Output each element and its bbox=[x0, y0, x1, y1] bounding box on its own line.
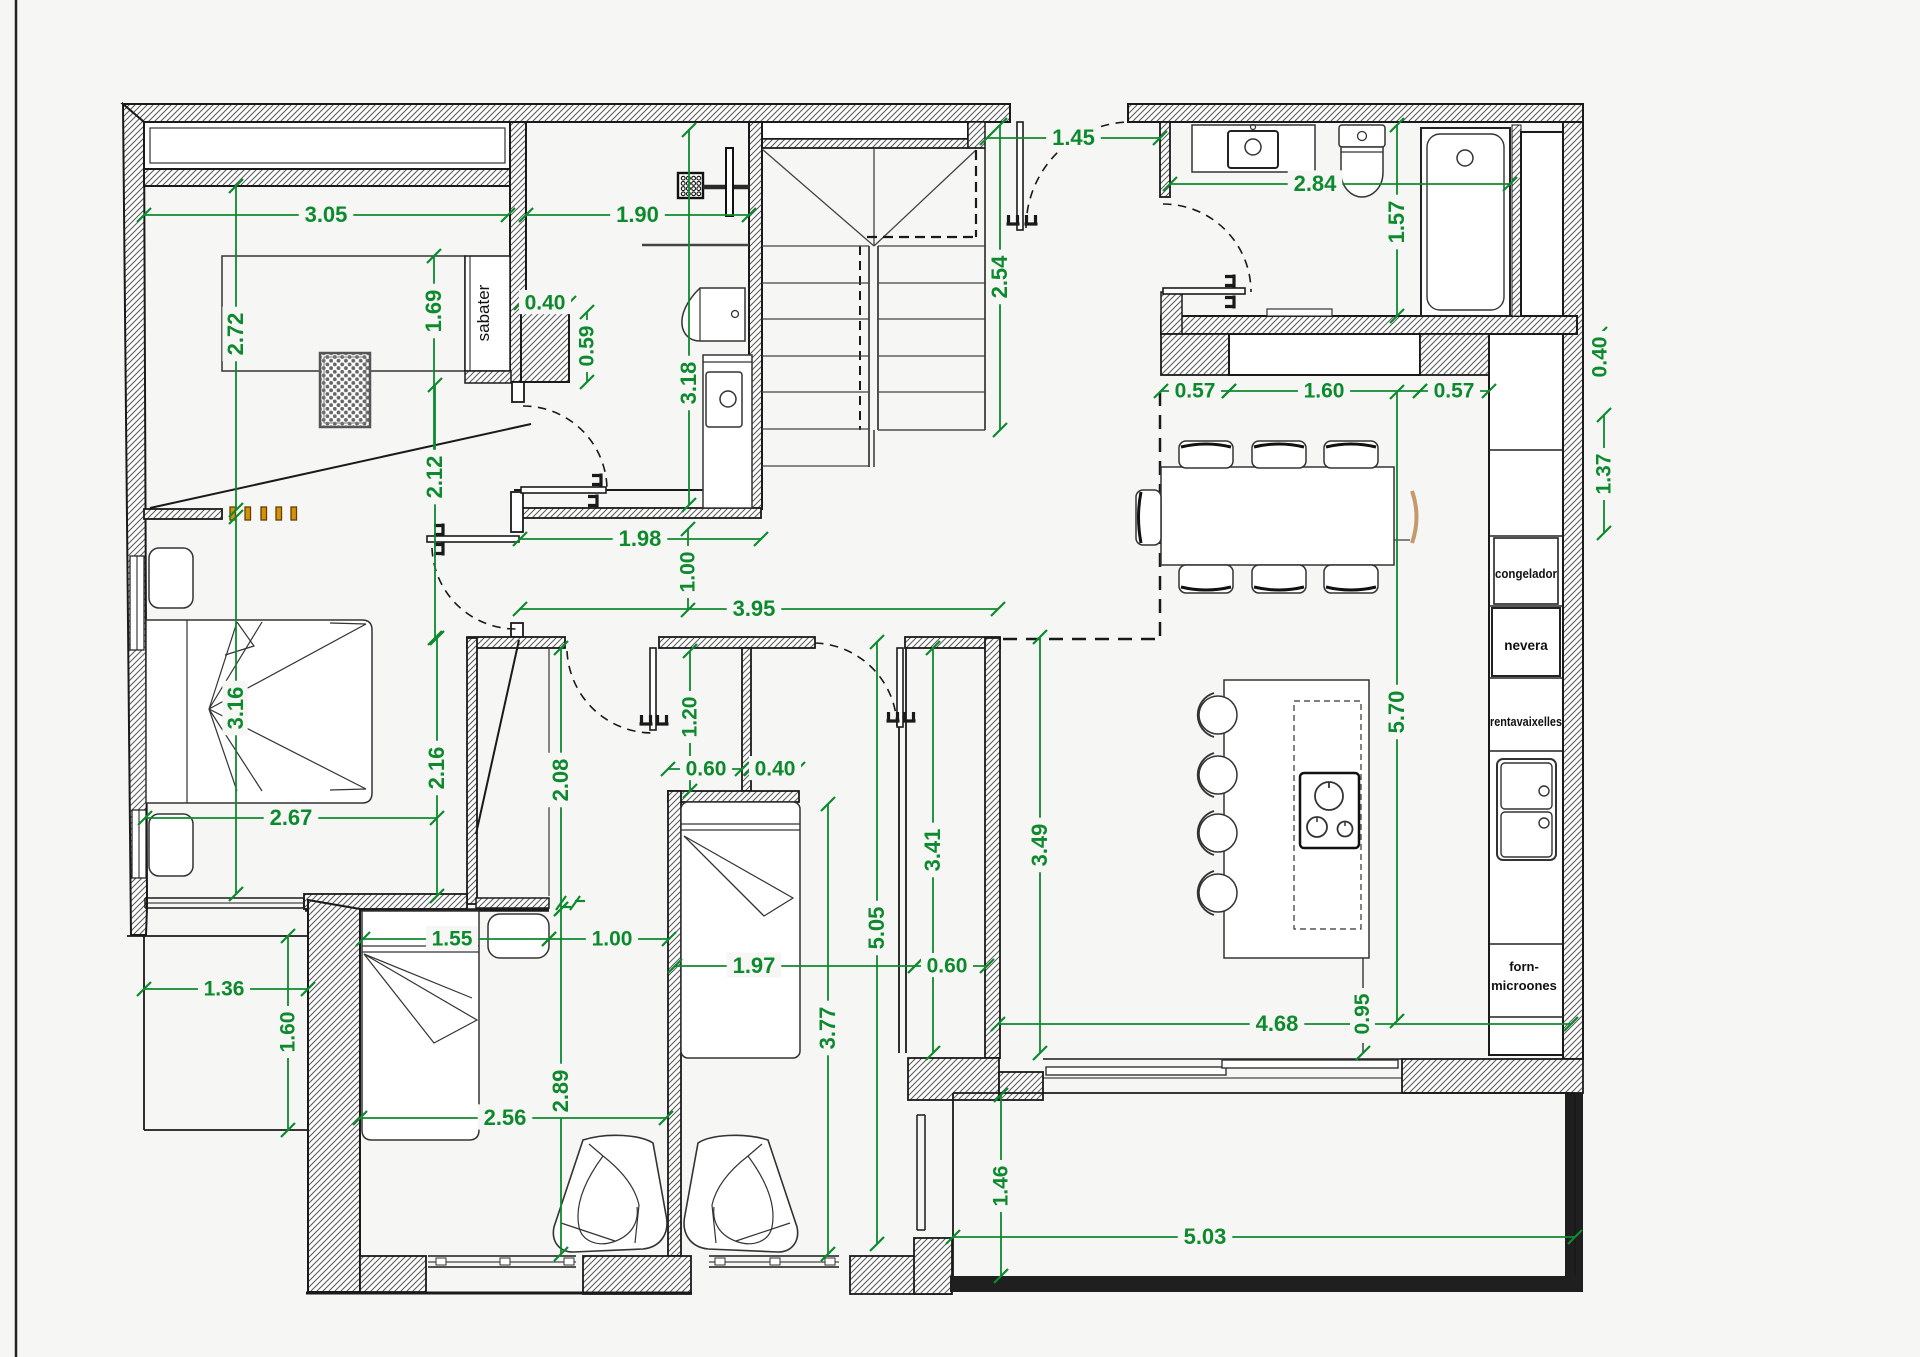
svg-text:1.90: 1.90 bbox=[616, 202, 659, 227]
svg-text:5.03: 5.03 bbox=[1184, 1224, 1227, 1249]
svg-text:0.60: 0.60 bbox=[927, 955, 968, 978]
svg-text:3.18: 3.18 bbox=[676, 362, 701, 405]
svg-text:1.00: 1.00 bbox=[677, 552, 700, 593]
svg-text:1.46: 1.46 bbox=[990, 1166, 1013, 1207]
svg-text:0.40: 0.40 bbox=[525, 292, 566, 315]
svg-text:3.95: 3.95 bbox=[733, 596, 776, 621]
svg-text:1.20: 1.20 bbox=[679, 697, 702, 738]
svg-text:2.89: 2.89 bbox=[548, 1070, 573, 1113]
svg-text:rentavaixelles: rentavaixelles bbox=[1490, 714, 1562, 729]
svg-text:3.49: 3.49 bbox=[1027, 824, 1052, 867]
svg-text:0.60: 0.60 bbox=[686, 758, 727, 781]
svg-text:3.16: 3.16 bbox=[223, 687, 248, 730]
svg-text:1.37: 1.37 bbox=[1593, 454, 1616, 495]
svg-text:1.45: 1.45 bbox=[1052, 125, 1095, 150]
svg-text:2.08: 2.08 bbox=[548, 759, 573, 802]
svg-text:2.54: 2.54 bbox=[987, 255, 1012, 299]
svg-text:0.57: 0.57 bbox=[1175, 380, 1216, 403]
svg-text:1.60: 1.60 bbox=[277, 1012, 300, 1053]
svg-text:nevera: nevera bbox=[1504, 638, 1548, 653]
svg-text:1.00: 1.00 bbox=[592, 928, 633, 951]
svg-text:1.57: 1.57 bbox=[1384, 201, 1409, 244]
svg-text:1.69: 1.69 bbox=[421, 290, 446, 333]
svg-text:1.60: 1.60 bbox=[1304, 380, 1345, 403]
svg-text:1.98: 1.98 bbox=[619, 526, 662, 551]
svg-text:2.12: 2.12 bbox=[422, 456, 447, 499]
svg-text:3.77: 3.77 bbox=[815, 1007, 840, 1050]
svg-text:3.41: 3.41 bbox=[920, 829, 945, 872]
svg-text:2.56: 2.56 bbox=[484, 1105, 527, 1130]
svg-text:0.40: 0.40 bbox=[1589, 337, 1612, 378]
svg-text:2.16: 2.16 bbox=[424, 747, 449, 790]
svg-text:2.72: 2.72 bbox=[223, 313, 248, 356]
svg-text:microones: microones bbox=[1491, 978, 1557, 993]
svg-text:2.67: 2.67 bbox=[270, 805, 313, 830]
svg-text:4.68: 4.68 bbox=[1256, 1011, 1299, 1036]
svg-text:congelador: congelador bbox=[1495, 566, 1557, 581]
svg-text:0.57: 0.57 bbox=[1434, 380, 1475, 403]
svg-text:5.70: 5.70 bbox=[1384, 691, 1409, 734]
svg-text:1.97: 1.97 bbox=[733, 953, 776, 978]
svg-text:5.05: 5.05 bbox=[864, 907, 889, 950]
svg-text:3.05: 3.05 bbox=[305, 202, 348, 227]
svg-text:0.40: 0.40 bbox=[755, 758, 796, 781]
svg-text:1.55: 1.55 bbox=[432, 928, 473, 951]
svg-text:sabater: sabater bbox=[474, 284, 493, 341]
svg-text:1.36: 1.36 bbox=[204, 978, 245, 1001]
svg-text:0.95: 0.95 bbox=[1351, 993, 1374, 1034]
svg-text:forn-: forn- bbox=[1509, 959, 1539, 974]
svg-text:0.59: 0.59 bbox=[576, 326, 599, 367]
svg-text:2.84: 2.84 bbox=[1294, 171, 1338, 196]
